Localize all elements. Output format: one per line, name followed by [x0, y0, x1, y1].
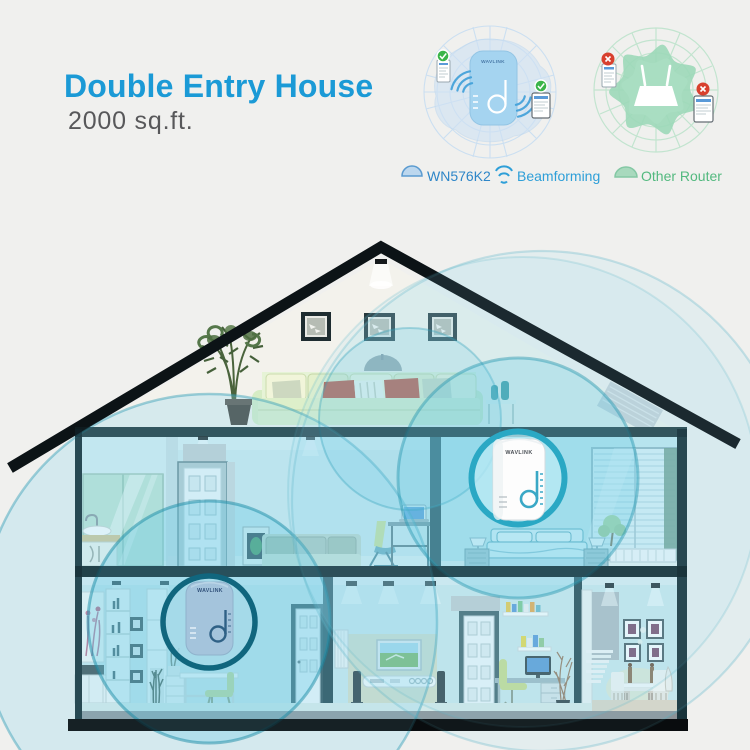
svg-text:WAVLINK: WAVLINK	[505, 450, 532, 456]
svg-text:WAVLINK: WAVLINK	[197, 588, 223, 594]
svg-text:WN576K2: WN576K2	[427, 168, 491, 184]
svg-text:2000 sq.ft.: 2000 sq.ft.	[68, 107, 194, 135]
svg-text:WAVLINK: WAVLINK	[481, 59, 505, 65]
svg-text:Other Router: Other Router	[641, 168, 722, 184]
svg-text:Beamforming: Beamforming	[517, 168, 600, 184]
svg-text:Double Entry House: Double Entry House	[64, 68, 373, 104]
